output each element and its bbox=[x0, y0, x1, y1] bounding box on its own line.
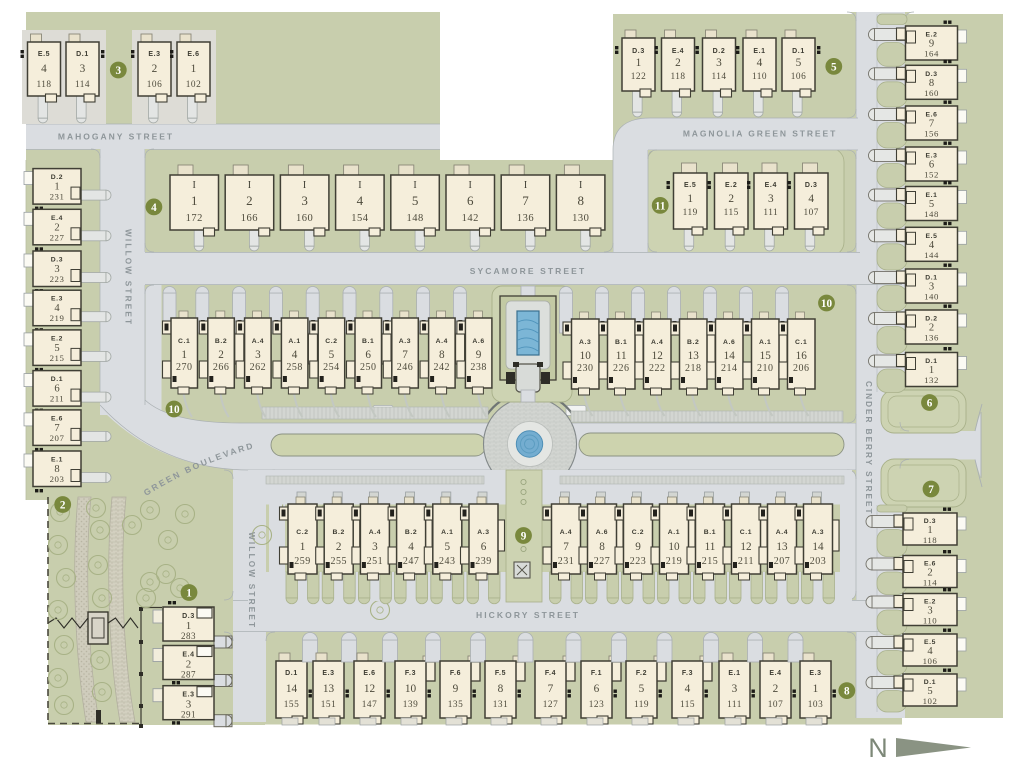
svg-text:I: I bbox=[358, 180, 361, 191]
svg-text:166: 166 bbox=[241, 213, 258, 224]
svg-text:D.3: D.3 bbox=[924, 518, 936, 525]
svg-text:A.6: A.6 bbox=[723, 339, 735, 346]
svg-text:SYCAMORE STREET: SYCAMORE STREET bbox=[470, 266, 587, 276]
svg-text:115: 115 bbox=[724, 208, 739, 218]
svg-text:4: 4 bbox=[808, 193, 814, 205]
svg-text:D.2: D.2 bbox=[925, 316, 937, 323]
svg-text:119: 119 bbox=[634, 700, 649, 710]
svg-text:131: 131 bbox=[493, 700, 508, 710]
svg-text:140: 140 bbox=[924, 292, 939, 302]
svg-text:E.2: E.2 bbox=[51, 335, 63, 342]
svg-text:3: 3 bbox=[301, 193, 308, 208]
svg-text:102: 102 bbox=[923, 696, 938, 706]
svg-text:E.4: E.4 bbox=[765, 182, 777, 189]
svg-text:I: I bbox=[579, 180, 582, 191]
svg-text:118: 118 bbox=[923, 535, 937, 545]
svg-text:107: 107 bbox=[803, 208, 818, 218]
svg-text:2: 2 bbox=[728, 193, 734, 205]
svg-text:3: 3 bbox=[732, 683, 738, 695]
svg-text:255: 255 bbox=[330, 556, 347, 567]
svg-text:223: 223 bbox=[50, 274, 65, 284]
svg-text:210: 210 bbox=[757, 363, 774, 374]
svg-text:E.5: E.5 bbox=[684, 182, 696, 189]
svg-text:12: 12 bbox=[740, 541, 751, 553]
svg-text:6: 6 bbox=[594, 683, 600, 695]
svg-text:160: 160 bbox=[924, 88, 939, 98]
svg-text:MAHOGANY STREET: MAHOGANY STREET bbox=[58, 132, 174, 142]
svg-text:3: 3 bbox=[116, 65, 122, 77]
svg-text:4: 4 bbox=[151, 202, 157, 214]
svg-text:203: 203 bbox=[50, 474, 65, 484]
svg-text:C.2: C.2 bbox=[296, 529, 308, 536]
svg-text:F.6: F.6 bbox=[450, 670, 461, 677]
svg-text:3: 3 bbox=[255, 349, 261, 361]
svg-text:270: 270 bbox=[176, 362, 193, 373]
svg-text:D.1: D.1 bbox=[285, 670, 298, 677]
svg-text:1: 1 bbox=[186, 588, 192, 600]
svg-text:152: 152 bbox=[924, 170, 939, 180]
svg-text:A.4: A.4 bbox=[369, 529, 381, 536]
svg-text:E.4: E.4 bbox=[182, 652, 194, 659]
svg-text:D.3: D.3 bbox=[51, 257, 63, 264]
svg-text:E.3: E.3 bbox=[182, 692, 194, 699]
svg-text:287: 287 bbox=[181, 670, 196, 680]
svg-text:F.3: F.3 bbox=[682, 670, 693, 677]
svg-text:123: 123 bbox=[589, 700, 604, 710]
svg-text:E.3: E.3 bbox=[925, 153, 937, 160]
svg-text:139: 139 bbox=[403, 700, 418, 710]
svg-text:115: 115 bbox=[680, 700, 695, 710]
svg-text:206: 206 bbox=[793, 363, 810, 374]
svg-text:A.3: A.3 bbox=[399, 338, 411, 345]
svg-text:E.3: E.3 bbox=[809, 670, 821, 677]
svg-text:11: 11 bbox=[705, 541, 716, 553]
svg-text:E.2: E.2 bbox=[925, 32, 937, 39]
svg-text:136: 136 bbox=[517, 213, 534, 224]
svg-text:283: 283 bbox=[181, 631, 196, 641]
svg-text:215: 215 bbox=[702, 556, 719, 567]
svg-text:219: 219 bbox=[50, 313, 65, 323]
svg-text:A.1: A.1 bbox=[288, 338, 300, 345]
svg-text:A.1: A.1 bbox=[759, 339, 771, 346]
svg-text:A.3: A.3 bbox=[579, 339, 591, 346]
svg-text:214: 214 bbox=[721, 363, 738, 374]
svg-text:C.2: C.2 bbox=[632, 529, 644, 536]
svg-text:207: 207 bbox=[50, 433, 65, 443]
svg-text:106: 106 bbox=[923, 656, 938, 666]
svg-text:8: 8 bbox=[599, 541, 605, 553]
svg-text:203: 203 bbox=[810, 556, 827, 567]
svg-text:230: 230 bbox=[577, 363, 594, 374]
svg-text:D.3: D.3 bbox=[805, 182, 818, 189]
svg-text:148: 148 bbox=[406, 213, 423, 224]
svg-text:102: 102 bbox=[186, 80, 201, 90]
svg-text:E.6: E.6 bbox=[924, 561, 936, 568]
svg-text:4: 4 bbox=[408, 541, 414, 553]
svg-text:C.1: C.1 bbox=[178, 338, 190, 345]
svg-text:9: 9 bbox=[635, 541, 641, 553]
svg-text:226: 226 bbox=[613, 363, 630, 374]
svg-text:246: 246 bbox=[397, 362, 414, 373]
svg-text:251: 251 bbox=[367, 556, 384, 567]
svg-text:7: 7 bbox=[563, 541, 569, 553]
svg-text:7: 7 bbox=[548, 683, 554, 695]
svg-text:A.6: A.6 bbox=[472, 338, 484, 345]
svg-text:106: 106 bbox=[147, 80, 162, 90]
svg-text:WILLOW STREET: WILLOW STREET bbox=[124, 229, 133, 326]
svg-text:4: 4 bbox=[292, 349, 298, 361]
svg-text:E.1: E.1 bbox=[51, 457, 63, 464]
svg-text:239: 239 bbox=[475, 556, 492, 567]
svg-text:10: 10 bbox=[580, 350, 592, 362]
svg-text:MAGNOLIA GREEN STREET: MAGNOLIA GREEN STREET bbox=[683, 129, 837, 139]
svg-text:155: 155 bbox=[284, 700, 299, 710]
svg-text:8: 8 bbox=[577, 193, 584, 208]
svg-text:111: 111 bbox=[763, 208, 778, 218]
svg-text:2: 2 bbox=[773, 683, 779, 695]
svg-text:107: 107 bbox=[768, 700, 783, 710]
svg-text:D.3: D.3 bbox=[925, 71, 937, 78]
svg-text:10: 10 bbox=[168, 404, 180, 416]
svg-text:A.4: A.4 bbox=[436, 338, 448, 345]
svg-text:238: 238 bbox=[470, 362, 487, 373]
svg-text:114: 114 bbox=[711, 72, 726, 82]
svg-text:I: I bbox=[248, 180, 251, 191]
svg-text:E.2: E.2 bbox=[924, 599, 936, 606]
svg-text:147: 147 bbox=[362, 700, 377, 710]
svg-text:3: 3 bbox=[372, 541, 378, 553]
svg-text:N: N bbox=[868, 733, 888, 763]
svg-text:5: 5 bbox=[639, 683, 645, 695]
svg-text:E.5: E.5 bbox=[38, 51, 50, 58]
svg-text:E.4: E.4 bbox=[672, 48, 684, 55]
svg-text:114: 114 bbox=[923, 578, 937, 588]
svg-text:B.2: B.2 bbox=[333, 529, 345, 536]
svg-text:7: 7 bbox=[522, 193, 529, 208]
svg-text:A.4: A.4 bbox=[252, 338, 264, 345]
svg-text:291: 291 bbox=[181, 710, 196, 720]
svg-text:172: 172 bbox=[186, 213, 203, 224]
svg-text:I: I bbox=[469, 180, 472, 191]
svg-text:10: 10 bbox=[821, 298, 833, 310]
svg-text:12: 12 bbox=[364, 683, 376, 695]
svg-text:A.4: A.4 bbox=[560, 529, 572, 536]
svg-text:11: 11 bbox=[616, 350, 627, 362]
svg-text:A.3: A.3 bbox=[812, 529, 824, 536]
svg-text:13: 13 bbox=[323, 683, 335, 695]
svg-text:D.1: D.1 bbox=[925, 275, 937, 282]
svg-text:10: 10 bbox=[405, 683, 417, 695]
svg-text:F.5: F.5 bbox=[495, 670, 506, 677]
svg-text:2: 2 bbox=[675, 57, 681, 69]
svg-text:3: 3 bbox=[716, 57, 722, 69]
svg-text:11: 11 bbox=[655, 200, 666, 212]
svg-text:F.1: F.1 bbox=[591, 670, 602, 677]
svg-text:E.6: E.6 bbox=[925, 112, 937, 119]
svg-text:12: 12 bbox=[652, 350, 663, 362]
svg-text:6: 6 bbox=[927, 398, 933, 410]
svg-text:144: 144 bbox=[924, 250, 939, 260]
svg-text:1: 1 bbox=[300, 541, 306, 553]
svg-text:148: 148 bbox=[924, 209, 939, 219]
svg-text:9: 9 bbox=[521, 531, 527, 543]
svg-text:E.6: E.6 bbox=[51, 415, 63, 422]
svg-text:D.3: D.3 bbox=[632, 48, 645, 55]
svg-text:160: 160 bbox=[296, 213, 313, 224]
svg-text:2: 2 bbox=[336, 541, 342, 553]
svg-text:243: 243 bbox=[439, 556, 456, 567]
svg-text:211: 211 bbox=[738, 556, 754, 567]
svg-text:14: 14 bbox=[286, 683, 298, 695]
svg-text:154: 154 bbox=[351, 213, 369, 224]
svg-text:1: 1 bbox=[191, 193, 198, 208]
svg-text:16: 16 bbox=[796, 350, 808, 362]
svg-text:D.1: D.1 bbox=[925, 358, 937, 365]
svg-text:103: 103 bbox=[808, 700, 823, 710]
svg-text:4: 4 bbox=[685, 683, 691, 695]
svg-text:HICKORY STREET: HICKORY STREET bbox=[476, 610, 580, 620]
svg-text:I: I bbox=[524, 180, 527, 191]
svg-text:262: 262 bbox=[250, 362, 267, 373]
svg-text:247: 247 bbox=[403, 556, 420, 567]
svg-text:E.3: E.3 bbox=[51, 296, 63, 303]
svg-text:2: 2 bbox=[218, 349, 224, 361]
svg-text:B.1: B.1 bbox=[362, 338, 374, 345]
svg-text:14: 14 bbox=[812, 541, 824, 553]
svg-text:D.1: D.1 bbox=[76, 51, 89, 58]
svg-text:C.2: C.2 bbox=[325, 338, 337, 345]
svg-text:A.1: A.1 bbox=[441, 529, 453, 536]
svg-text:10: 10 bbox=[668, 541, 680, 553]
svg-text:127: 127 bbox=[543, 700, 558, 710]
svg-text:258: 258 bbox=[286, 362, 303, 373]
svg-text:7: 7 bbox=[402, 349, 408, 361]
svg-text:B.2: B.2 bbox=[687, 339, 699, 346]
svg-text:2: 2 bbox=[152, 63, 158, 75]
svg-text:13: 13 bbox=[776, 541, 788, 553]
svg-text:118: 118 bbox=[670, 72, 685, 82]
svg-text:5: 5 bbox=[412, 193, 419, 208]
svg-text:F.2: F.2 bbox=[636, 670, 647, 677]
svg-text:164: 164 bbox=[924, 49, 939, 59]
svg-text:130: 130 bbox=[572, 213, 589, 224]
svg-text:132: 132 bbox=[924, 375, 939, 385]
svg-text:254: 254 bbox=[323, 362, 340, 373]
svg-text:7: 7 bbox=[928, 484, 934, 496]
svg-text:E.4: E.4 bbox=[51, 215, 63, 222]
svg-text:4: 4 bbox=[357, 193, 364, 208]
svg-text:110: 110 bbox=[923, 616, 937, 626]
svg-text:114: 114 bbox=[75, 80, 90, 90]
svg-text:3: 3 bbox=[80, 63, 86, 75]
svg-text:A.1: A.1 bbox=[668, 529, 680, 536]
svg-text:111: 111 bbox=[727, 700, 742, 710]
svg-text:9: 9 bbox=[476, 349, 482, 361]
svg-text:223: 223 bbox=[630, 556, 647, 567]
svg-text:218: 218 bbox=[685, 363, 702, 374]
svg-text:119: 119 bbox=[683, 208, 698, 218]
svg-text:1: 1 bbox=[636, 57, 642, 69]
svg-text:E.1: E.1 bbox=[925, 192, 937, 199]
svg-text:E.3: E.3 bbox=[148, 51, 160, 58]
svg-text:219: 219 bbox=[666, 556, 683, 567]
svg-text:6: 6 bbox=[481, 541, 487, 553]
svg-text:E.6: E.6 bbox=[187, 51, 199, 58]
svg-text:122: 122 bbox=[631, 72, 646, 82]
svg-text:B.1: B.1 bbox=[704, 529, 716, 536]
svg-text:156: 156 bbox=[924, 129, 939, 139]
svg-text:14: 14 bbox=[724, 350, 736, 362]
svg-text:227: 227 bbox=[594, 556, 611, 567]
svg-text:259: 259 bbox=[294, 556, 311, 567]
svg-text:142: 142 bbox=[462, 213, 479, 224]
svg-text:E.5: E.5 bbox=[925, 233, 937, 240]
svg-text:1: 1 bbox=[191, 63, 197, 75]
svg-text:2: 2 bbox=[60, 500, 66, 512]
svg-text:6: 6 bbox=[365, 349, 371, 361]
svg-text:231: 231 bbox=[558, 556, 575, 567]
svg-text:E.1: E.1 bbox=[753, 48, 765, 55]
svg-text:110: 110 bbox=[752, 72, 767, 82]
svg-text:A.4: A.4 bbox=[776, 529, 788, 536]
svg-text:F.4: F.4 bbox=[545, 670, 556, 677]
svg-text:227: 227 bbox=[50, 232, 65, 242]
svg-text:A.3: A.3 bbox=[477, 529, 489, 536]
svg-text:4: 4 bbox=[757, 57, 763, 69]
svg-text:266: 266 bbox=[213, 362, 230, 373]
svg-text:211: 211 bbox=[50, 394, 64, 404]
svg-text:136: 136 bbox=[924, 333, 939, 343]
svg-text:E.5: E.5 bbox=[924, 639, 936, 646]
svg-text:C.1: C.1 bbox=[795, 339, 807, 346]
svg-text:E.2: E.2 bbox=[725, 182, 737, 189]
svg-text:1: 1 bbox=[813, 683, 819, 695]
svg-text:A.4: A.4 bbox=[651, 339, 663, 346]
svg-text:WILLOW STREET: WILLOW STREET bbox=[247, 532, 256, 629]
svg-text:D.1: D.1 bbox=[924, 679, 936, 686]
svg-text:D.1: D.1 bbox=[792, 48, 805, 55]
svg-text:9: 9 bbox=[453, 683, 459, 695]
svg-text:8: 8 bbox=[844, 686, 850, 698]
svg-text:13: 13 bbox=[688, 350, 700, 362]
svg-text:E.1: E.1 bbox=[728, 670, 740, 677]
svg-text:215: 215 bbox=[50, 353, 65, 363]
svg-text:2: 2 bbox=[246, 193, 253, 208]
svg-text:8: 8 bbox=[498, 683, 504, 695]
svg-text:1: 1 bbox=[687, 193, 693, 205]
svg-text:I: I bbox=[193, 180, 196, 191]
svg-text:5: 5 bbox=[445, 541, 451, 553]
svg-text:250: 250 bbox=[360, 362, 377, 373]
svg-text:D.3: D.3 bbox=[182, 613, 195, 620]
svg-text:CINDER BERRY STREET: CINDER BERRY STREET bbox=[864, 381, 873, 515]
svg-text:I: I bbox=[413, 180, 416, 191]
svg-text:231: 231 bbox=[50, 192, 65, 202]
svg-text:15: 15 bbox=[760, 350, 772, 362]
svg-text:B.1: B.1 bbox=[615, 339, 627, 346]
svg-text:E.6: E.6 bbox=[363, 670, 375, 677]
svg-text:151: 151 bbox=[321, 700, 336, 710]
svg-text:B.2: B.2 bbox=[215, 338, 227, 345]
svg-text:242: 242 bbox=[434, 362, 451, 373]
svg-text:C.1: C.1 bbox=[740, 529, 752, 536]
svg-text:D.2: D.2 bbox=[51, 174, 63, 181]
svg-text:D.1: D.1 bbox=[51, 376, 63, 383]
svg-text:4: 4 bbox=[41, 63, 47, 75]
svg-text:6: 6 bbox=[467, 193, 474, 208]
svg-text:5: 5 bbox=[831, 61, 837, 73]
svg-text:106: 106 bbox=[791, 72, 806, 82]
svg-text:118: 118 bbox=[36, 80, 51, 90]
svg-text:E.4: E.4 bbox=[769, 670, 781, 677]
svg-text:5: 5 bbox=[796, 57, 802, 69]
svg-text:8: 8 bbox=[439, 349, 445, 361]
svg-text:1: 1 bbox=[181, 349, 187, 361]
svg-text:F.3: F.3 bbox=[405, 670, 416, 677]
svg-text:207: 207 bbox=[774, 556, 791, 567]
svg-text:222: 222 bbox=[649, 363, 666, 374]
svg-text:A.6: A.6 bbox=[596, 529, 608, 536]
svg-text:3: 3 bbox=[768, 193, 774, 205]
svg-text:135: 135 bbox=[448, 700, 463, 710]
svg-text:I: I bbox=[303, 180, 306, 191]
svg-text:B.2: B.2 bbox=[405, 529, 417, 536]
svg-text:5: 5 bbox=[329, 349, 335, 361]
svg-text:D.2: D.2 bbox=[713, 48, 726, 55]
svg-text:E.3: E.3 bbox=[322, 670, 334, 677]
